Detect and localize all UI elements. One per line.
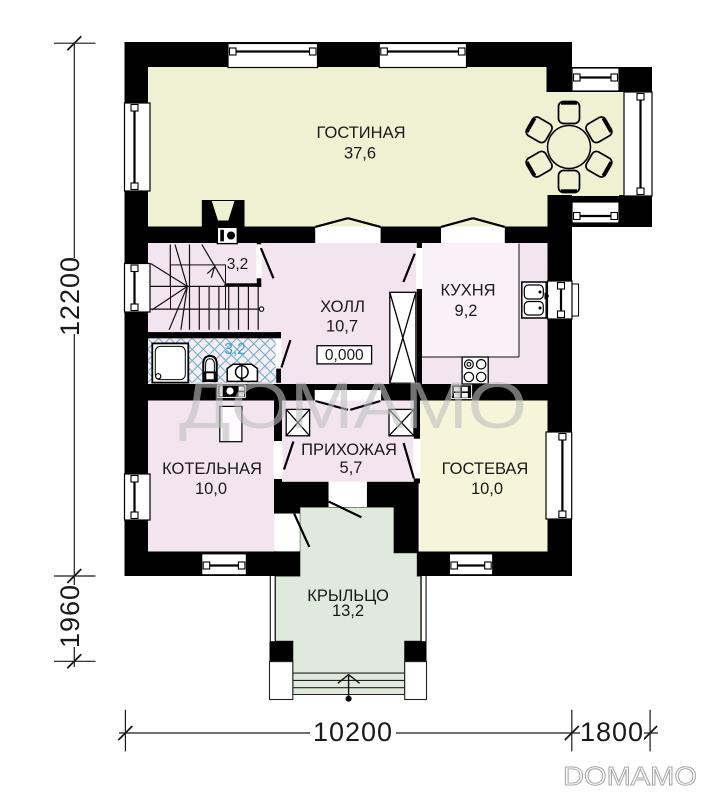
svg-text:3,2: 3,2: [224, 341, 246, 358]
svg-text:10,0: 10,0: [471, 480, 503, 498]
svg-text:37,6: 37,6: [344, 145, 376, 163]
svg-text:10,7: 10,7: [326, 318, 358, 336]
svg-text:9,2: 9,2: [455, 302, 478, 320]
svg-text:КОТЕЛЬНАЯ: КОТЕЛЬНАЯ: [162, 460, 262, 478]
svg-text:КУХНЯ: КУХНЯ: [440, 282, 495, 300]
svg-text:13,2: 13,2: [332, 602, 364, 620]
svg-text:1960: 1960: [55, 584, 85, 648]
svg-text:10200: 10200: [313, 717, 393, 747]
svg-text:ДОМАМО: ДОМАМО: [179, 368, 527, 442]
svg-text:1800: 1800: [580, 717, 644, 747]
svg-text:ГОСТИНАЯ: ГОСТИНАЯ: [317, 124, 406, 142]
svg-text:ГОСТЕВАЯ: ГОСТЕВАЯ: [442, 460, 529, 478]
svg-text:3,2: 3,2: [227, 256, 249, 273]
svg-text:12200: 12200: [55, 256, 85, 336]
svg-text:DOMAMO: DOMAMO: [563, 761, 697, 791]
svg-text:5,7: 5,7: [340, 459, 363, 477]
svg-text:0,000: 0,000: [325, 347, 364, 364]
svg-text:10,0: 10,0: [195, 480, 227, 498]
svg-text:ПРИХОЖАЯ: ПРИХОЖАЯ: [301, 441, 397, 459]
svg-text:ХОЛЛ: ХОЛЛ: [320, 298, 365, 316]
